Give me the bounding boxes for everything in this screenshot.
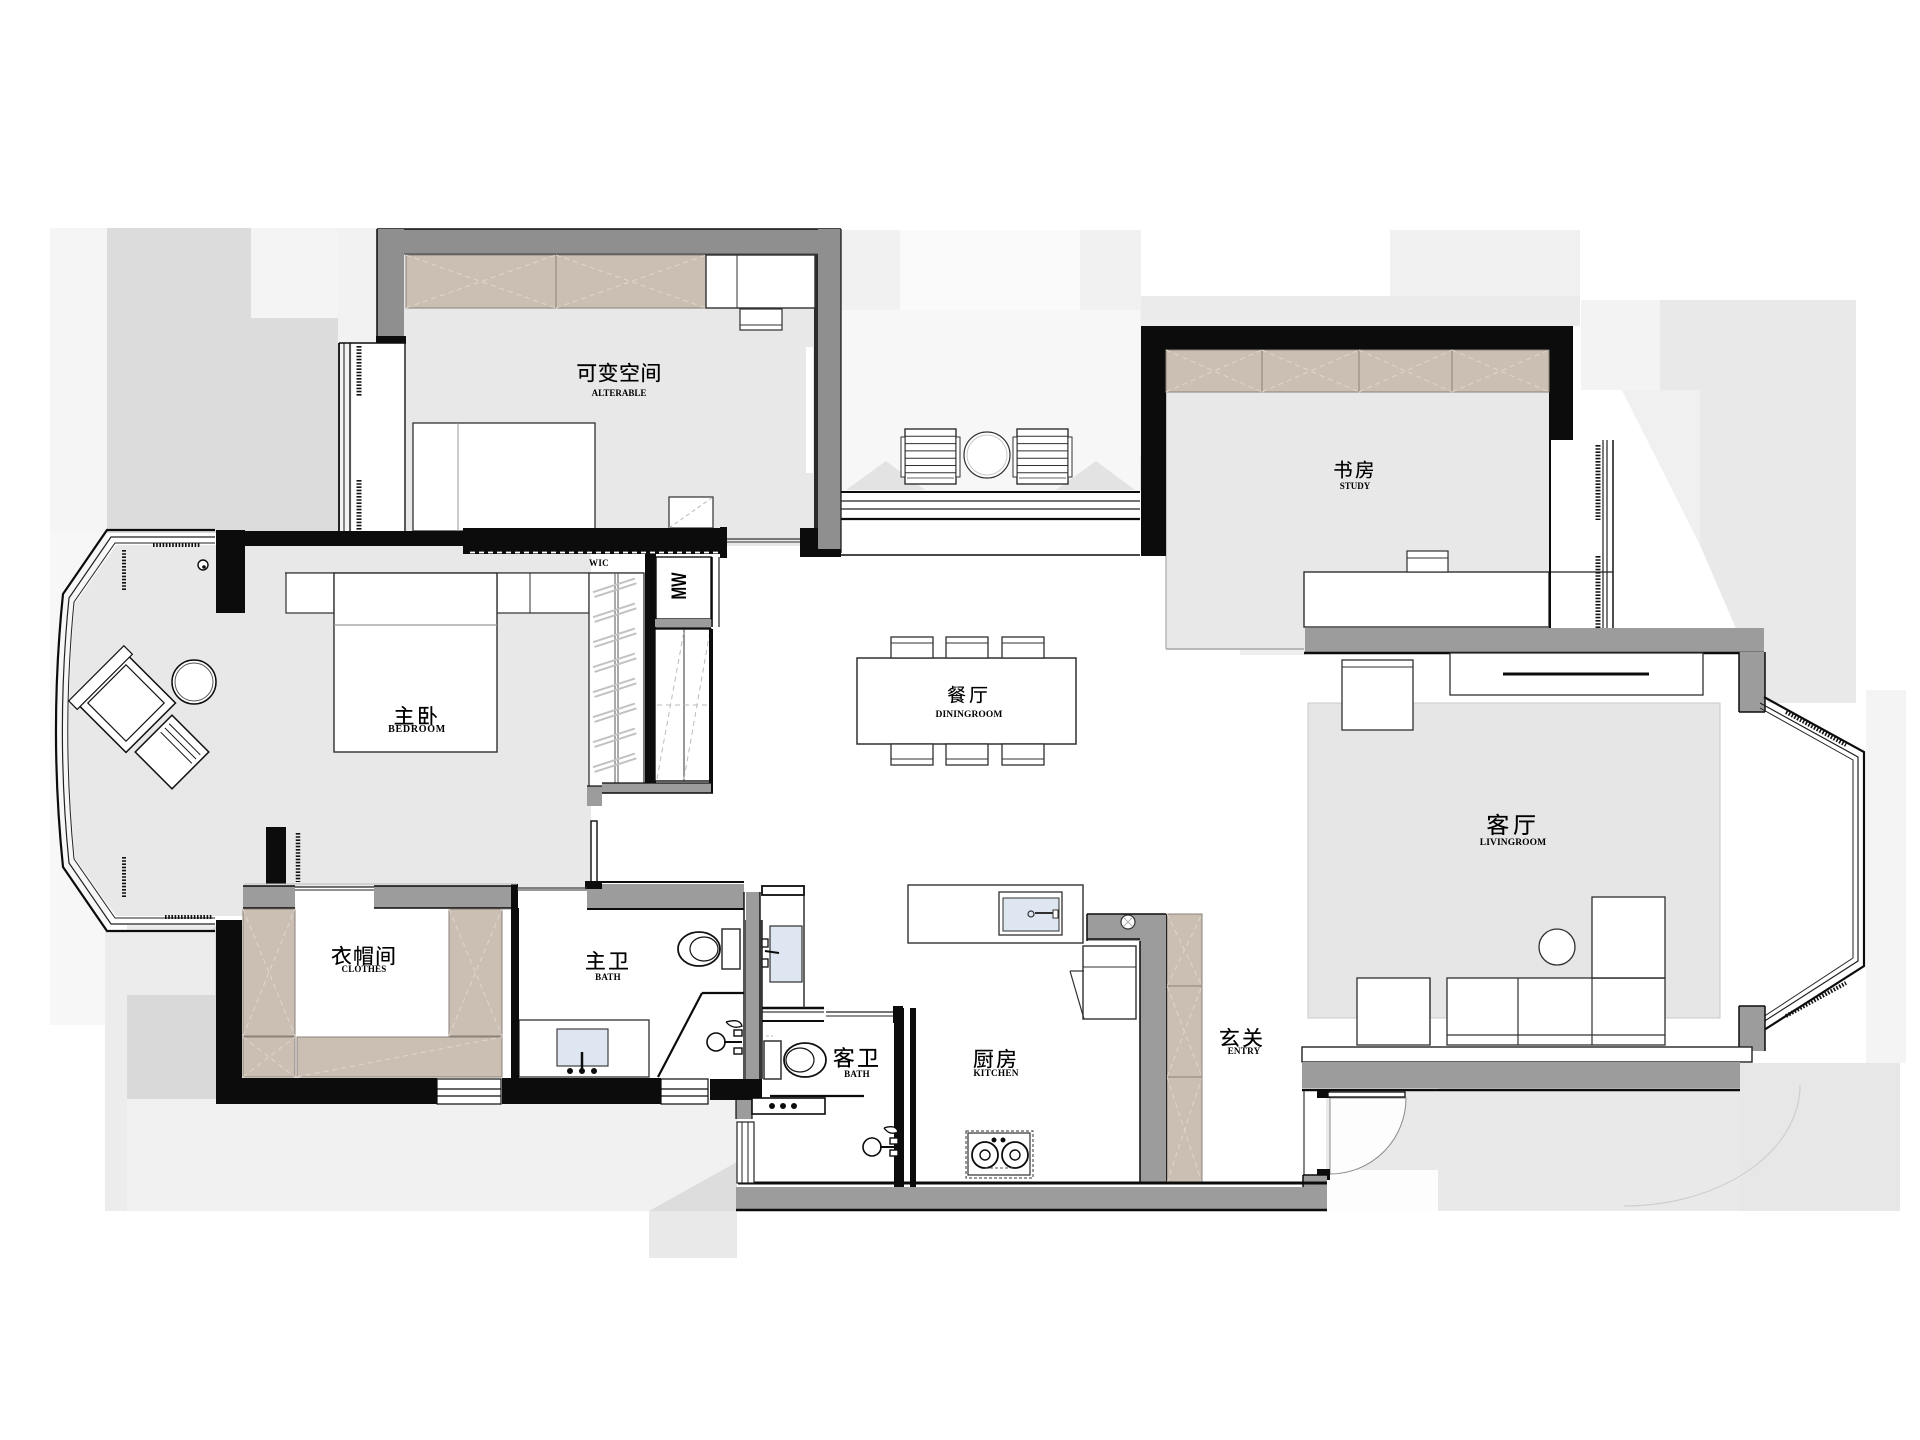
svg-text:LIVINGROOM: LIVINGROOM <box>1480 838 1546 848</box>
svg-text:DININGROOM: DININGROOM <box>936 710 1003 720</box>
svg-text:ENTRY: ENTRY <box>1228 1046 1261 1056</box>
svg-text:WIC: WIC <box>589 558 609 568</box>
svg-text:KITCHEN: KITCHEN <box>973 1069 1018 1079</box>
svg-text:STUDY: STUDY <box>1340 481 1371 491</box>
svg-text:BATH: BATH <box>595 972 621 982</box>
svg-text:BEDROOM: BEDROOM <box>388 724 446 735</box>
svg-text:ALTERABLE: ALTERABLE <box>592 388 647 398</box>
svg-text:CLOTHES: CLOTHES <box>342 964 387 974</box>
svg-text:BATH: BATH <box>844 1069 870 1079</box>
svg-text:MW: MW <box>668 572 691 599</box>
